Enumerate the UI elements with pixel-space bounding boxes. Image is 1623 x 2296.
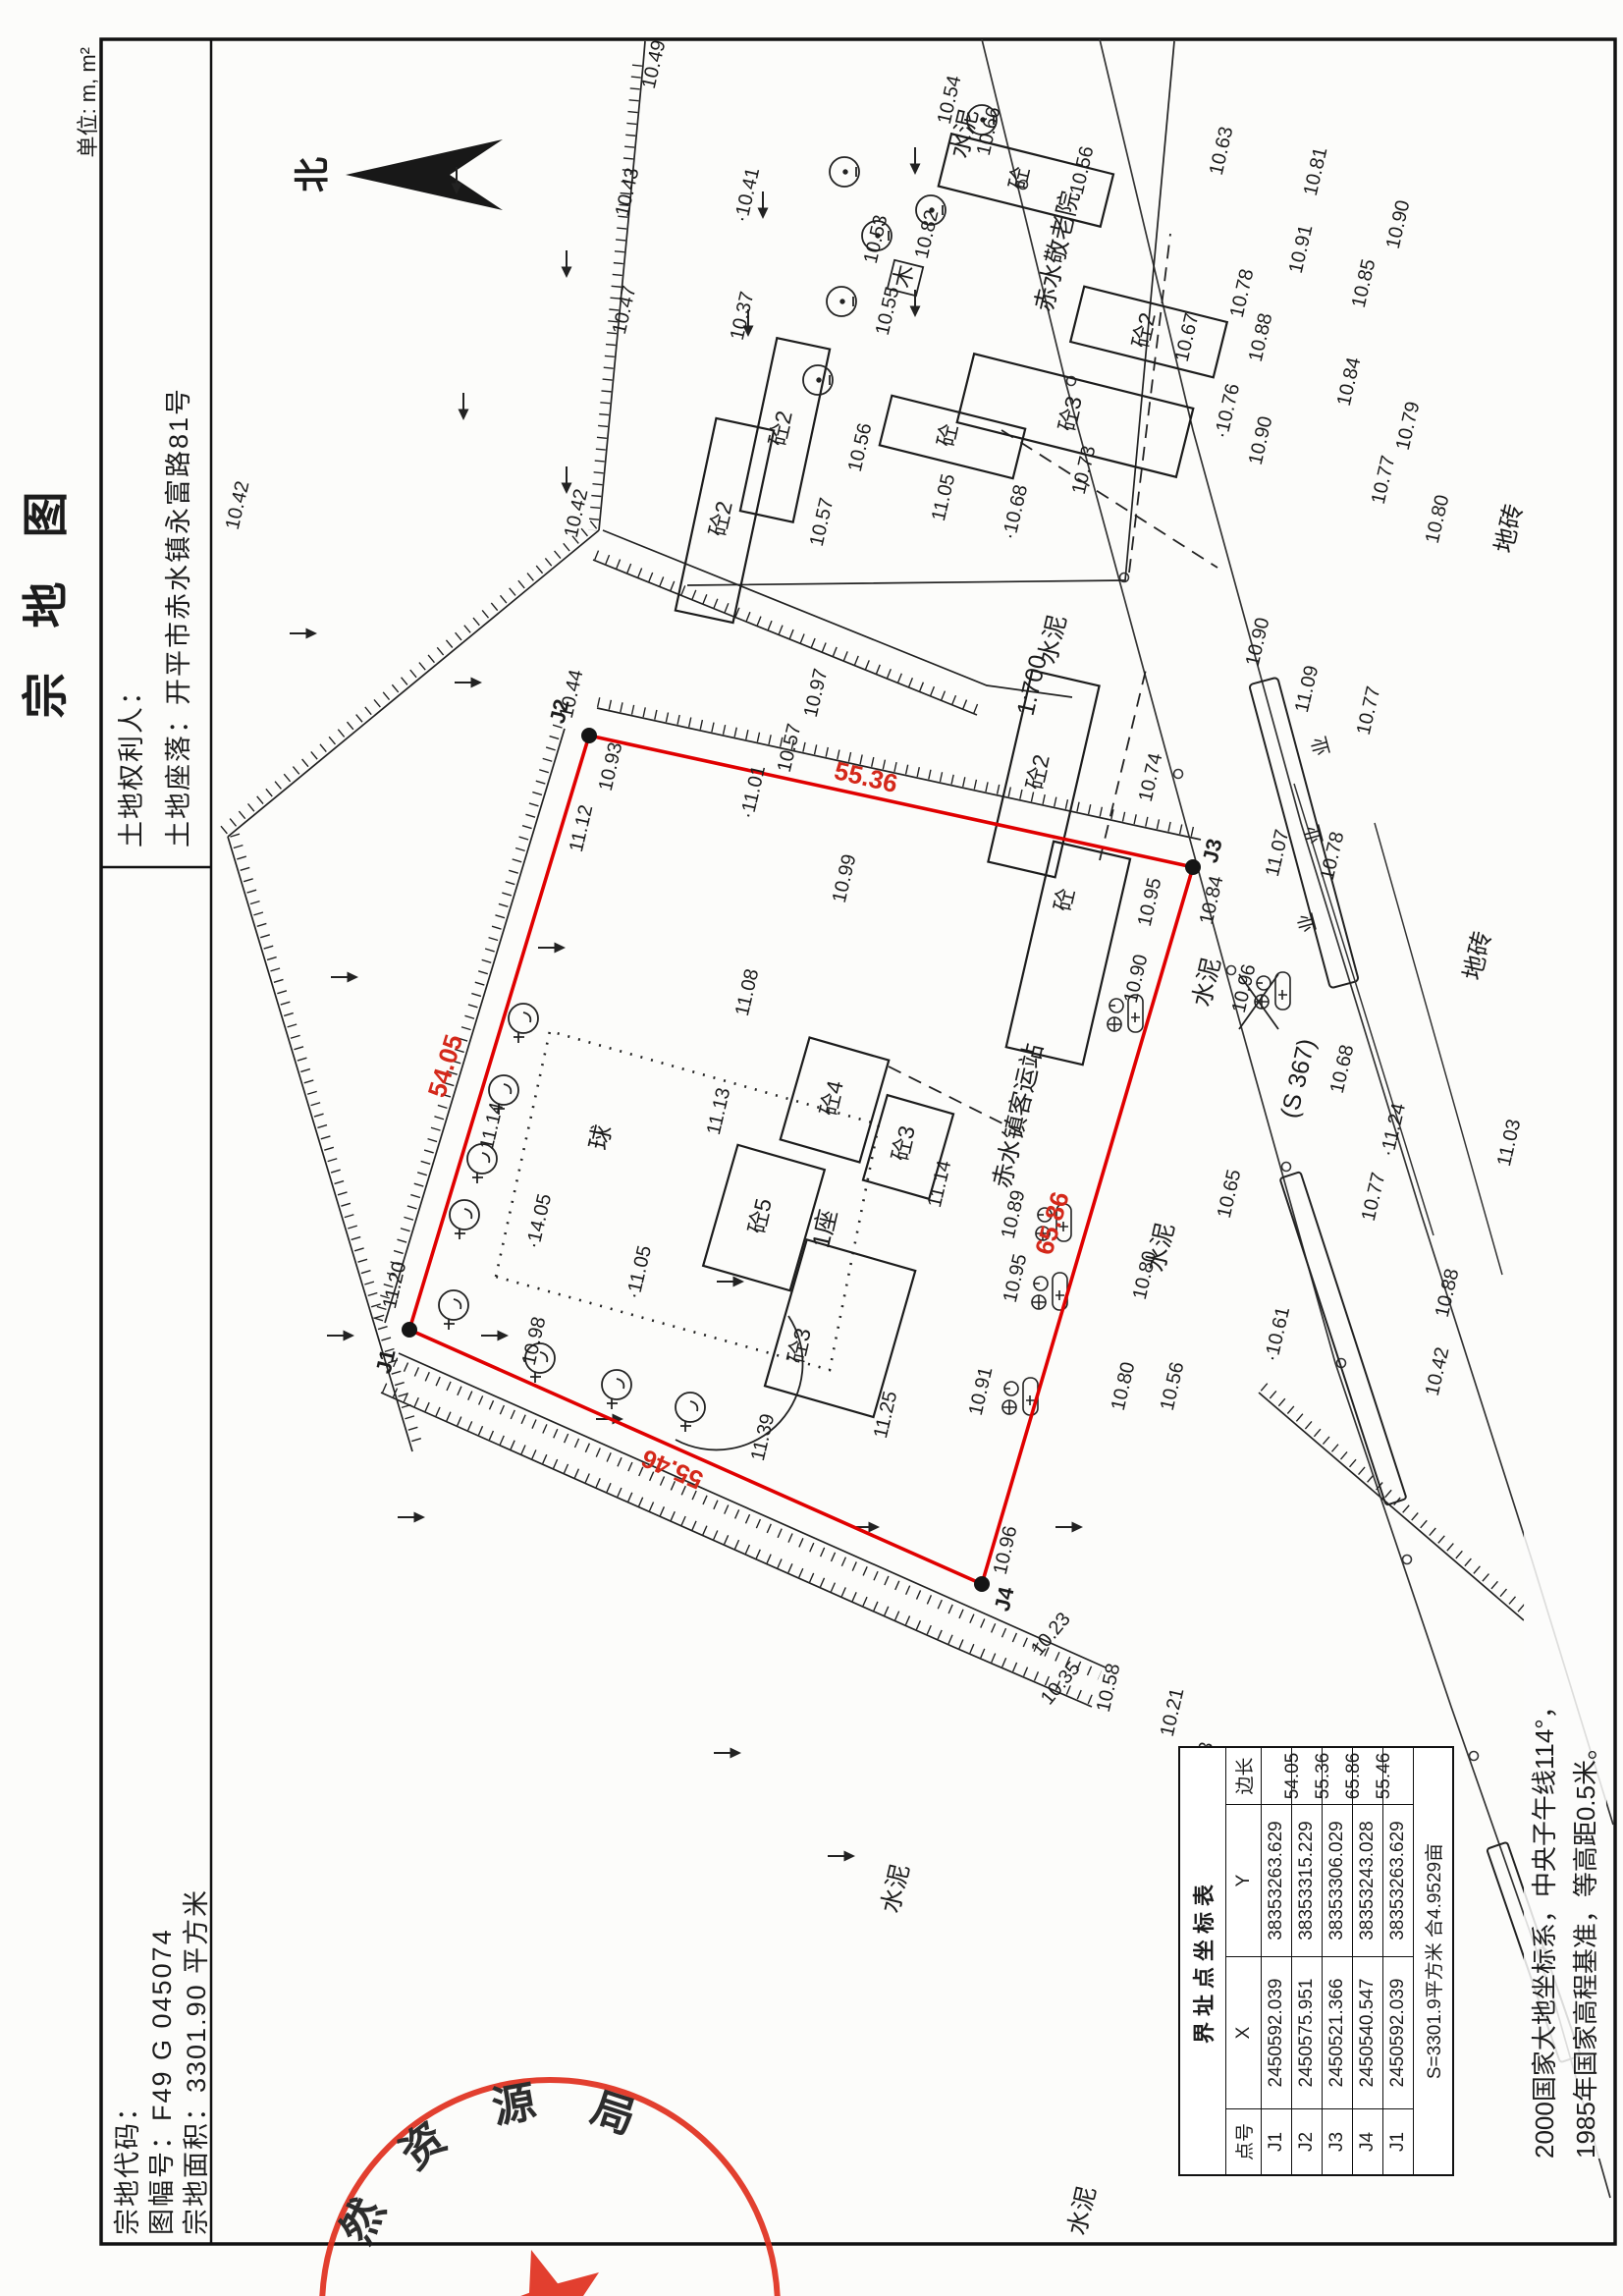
map-label: 11.39	[747, 1412, 779, 1463]
map-label: 10.56	[1066, 144, 1099, 197]
map-label: 10.91	[1285, 223, 1318, 276]
map-label: ·11.24	[1377, 1101, 1410, 1159]
edge-length-label: 65.86	[1029, 1188, 1075, 1258]
map-label: 11.25	[870, 1390, 901, 1441]
map-label: 砼	[933, 421, 963, 449]
coordinate-table: 界址点坐标表 点号 X Y 边长 J12450592.03938353263.6…	[1178, 1746, 1454, 2176]
svg-text:北: 北	[292, 157, 332, 192]
map-label: 10.67	[1171, 311, 1204, 364]
map-label: 11.12	[566, 803, 597, 854]
map-label: 11.14	[476, 1101, 508, 1152]
map-label: 10.42	[222, 479, 254, 532]
map-label: 10.84	[1333, 355, 1366, 409]
datum-note-line2: 1985年国家高程基准，等高距0.5米。	[1565, 1530, 1606, 2159]
map-label: 地砖	[1459, 929, 1497, 983]
map-label: 砼4	[816, 1078, 848, 1119]
map-label: 10.97	[800, 667, 833, 720]
map-label: 砼3	[1055, 394, 1087, 434]
north-arrow-icon: 北	[292, 139, 503, 210]
map-label: 砼2	[1022, 752, 1055, 793]
vertex-label: J4	[990, 1584, 1019, 1613]
official-stamp: 然资源局	[322, 2078, 778, 2296]
map-label: 11.09	[1291, 664, 1323, 715]
map-label: 10.43	[612, 166, 644, 219]
map-label: ·10.61	[1261, 1305, 1294, 1364]
coordinate-table-row: J12450592.03938353263.62954.05	[1262, 1747, 1292, 2175]
map-label: 10.82	[911, 208, 944, 261]
map-label: 10.58	[1093, 1662, 1125, 1715]
map-label: 10.63	[1206, 125, 1238, 178]
map-label: 10.78	[1226, 267, 1259, 320]
datum-notes: 2000国家大地坐标系，中央子午线114°， 1985年国家高程基准，等高距0.…	[1524, 1530, 1606, 2159]
map-label: 水泥	[1034, 613, 1072, 667]
map-label: 10.88	[1245, 311, 1277, 364]
map-label: 10.77	[1353, 684, 1385, 738]
map-label: 10.95	[1000, 1252, 1032, 1305]
stamp-character: 资	[392, 2114, 456, 2179]
map-label: ·10.41	[730, 166, 764, 225]
map-label: 10.42	[561, 487, 593, 540]
map-label: 10.47	[609, 284, 641, 337]
map-label: 木	[889, 262, 919, 290]
edge-length-label: 54.05	[422, 1031, 469, 1101]
map-label: 10.79	[1392, 400, 1425, 453]
map-label: 10.77	[1368, 454, 1400, 507]
map-label: 水泥	[1063, 2184, 1102, 2238]
vertex-J2	[581, 728, 597, 743]
map-label: 10.88	[1432, 1267, 1464, 1320]
coordinate-table-row: J12450592.03938353263.629	[1383, 1747, 1414, 2175]
stamp-character: 然	[332, 2192, 394, 2252]
map-label: 10.49	[638, 38, 671, 91]
map-label: 10.90	[1382, 198, 1415, 251]
map-label: 球	[585, 1122, 618, 1153]
map-label: 10.56	[844, 421, 877, 474]
map-label: 10.89	[998, 1188, 1030, 1241]
map-label: 10.80	[1108, 1360, 1140, 1413]
map-label: ·14.05	[522, 1192, 556, 1251]
map-label: 11.14	[924, 1159, 955, 1210]
vertex-J1	[402, 1322, 417, 1338]
map-label: 10.53	[860, 213, 893, 266]
map-label: 水泥	[1188, 956, 1226, 1010]
map-label: 10.21	[1157, 1686, 1189, 1739]
map-label: 10.90	[1120, 953, 1153, 1006]
map-label: 10.96	[990, 1524, 1022, 1577]
coordinate-table-row: J22450575.95138353315.22955.36	[1292, 1747, 1323, 2175]
map-label: 11.07	[1262, 828, 1293, 879]
map-label: 水泥	[877, 1862, 915, 1916]
map-label: 业	[1294, 910, 1321, 935]
map-label: 10.77	[1358, 1171, 1390, 1224]
stamp-star-icon	[489, 2250, 599, 2296]
map-label: ·10.76	[1211, 382, 1244, 441]
map-label: 10.74	[1135, 751, 1167, 804]
coordinate-table-title: 界址点坐标表	[1179, 1747, 1226, 2175]
map-label: 赤水敬老院	[1031, 189, 1085, 314]
vertex-label: J1	[371, 1347, 401, 1376]
map-label: 10.93	[595, 740, 627, 793]
map-label: 10.98	[518, 1315, 551, 1368]
scanned-parcel-map-page: 宗 地 图 单位: m, m² 宗地代码： 图幅号：F49 G 045074 宗…	[0, 0, 1623, 2296]
area-summary: S=3301.9平方米 合4.9529亩	[1414, 1747, 1454, 2175]
map-label: 地砖	[1490, 502, 1529, 556]
map-label: 赤水镇客运站	[989, 1041, 1049, 1190]
datum-note-line1: 2000国家大地坐标系，中央子午线114°，	[1524, 1530, 1565, 2159]
map-label: ·11.01	[736, 763, 770, 821]
map-label: 11.08	[731, 967, 763, 1018]
map-label: 10.95	[1134, 876, 1166, 929]
map-label: ·11.05	[622, 1243, 656, 1301]
vertex-J3	[1185, 859, 1201, 875]
map-label: 10.99	[829, 852, 861, 905]
stamp-character: 源	[489, 2078, 540, 2133]
map-label: 10.57	[806, 496, 839, 549]
map-label: 10.56	[1157, 1360, 1189, 1413]
map-label: 11.20	[379, 1260, 410, 1311]
map-label: 11.05	[928, 472, 959, 523]
map-label: 10.81	[1300, 145, 1332, 198]
map-label: 10.37	[727, 290, 759, 343]
map-label: 砼3	[784, 1326, 816, 1366]
map-label: 砼5	[744, 1196, 777, 1236]
map-label: 11.03	[1493, 1118, 1525, 1169]
map-label: 10.80	[1422, 493, 1454, 546]
map-label: 11.13	[703, 1086, 734, 1137]
map-label: 砼	[1050, 886, 1080, 913]
map-label: 10.42	[1422, 1345, 1454, 1398]
map-label: 10.91	[965, 1365, 998, 1418]
map-label: 10.85	[1348, 257, 1380, 310]
map-label: 10.23	[1027, 1609, 1075, 1660]
coordinate-table-row: J42450540.54738353243.02855.46	[1353, 1747, 1383, 2175]
map-label: 水泥	[1142, 1221, 1180, 1275]
landscape-sheet: 宗 地 图 单位: m, m² 宗地代码： 图幅号：F49 G 045074 宗…	[0, 0, 1623, 2296]
map-label: 砼2	[765, 409, 797, 449]
map-label: 业	[1308, 734, 1334, 758]
map-label: (S 367)	[1275, 1036, 1321, 1121]
map-label: 10.57	[774, 722, 806, 775]
vertex-label: J3	[1198, 837, 1227, 865]
map-label: 10.90	[1245, 414, 1277, 467]
map-label: ·10.68	[999, 483, 1032, 542]
map-label: 砼	[1004, 164, 1035, 191]
map-label: 10.55	[872, 285, 904, 338]
map-label: 砼3	[888, 1123, 920, 1164]
map-label: 砼2	[705, 499, 737, 539]
coordinate-table-header: 点号 X Y 边长	[1226, 1747, 1262, 2175]
coordinate-table-row: J32450521.36638353306.02965.86	[1323, 1747, 1353, 2175]
map-label: 10.65	[1214, 1168, 1246, 1221]
vertex-J4	[974, 1576, 990, 1592]
map-label: 10.68	[1326, 1043, 1359, 1096]
map-label: 砼2	[1128, 310, 1161, 351]
map-label: 10.84	[1196, 874, 1228, 927]
